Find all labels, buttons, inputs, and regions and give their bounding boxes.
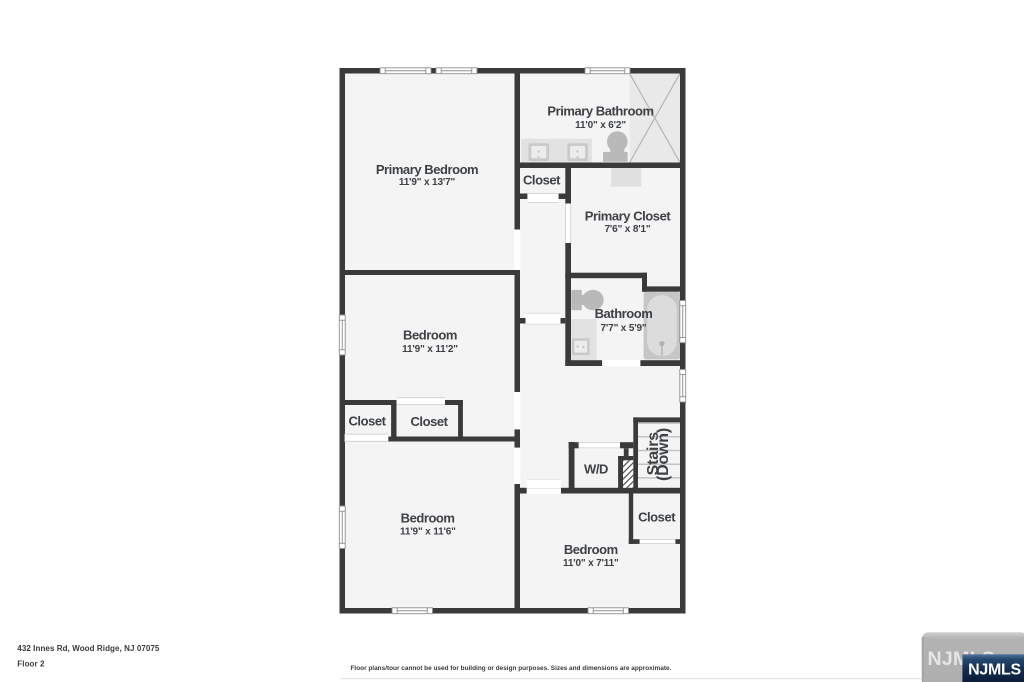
svg-text:(Down): (Down) [655,428,672,481]
svg-text:Bedroom: Bedroom [401,511,455,526]
svg-text:Primary Bathroom: Primary Bathroom [547,104,653,119]
svg-text:Primary Bedroom: Primary Bedroom [376,162,478,177]
svg-text:Floor 2: Floor 2 [17,660,45,669]
svg-text:Closet: Closet [638,510,676,525]
svg-text:11'9" x 13'7": 11'9" x 13'7" [399,177,456,188]
svg-text:432 Innes Rd, Wood Ridge, NJ 0: 432 Innes Rd, Wood Ridge, NJ 07075 [17,644,160,653]
svg-text:Closet: Closet [523,173,561,188]
svg-text:Bathroom: Bathroom [595,306,653,321]
svg-text:11'0" x 6'2": 11'0" x 6'2" [575,120,626,131]
svg-text:Bedroom: Bedroom [564,542,618,557]
svg-text:Floor plans/tour cannot be use: Floor plans/tour cannot be used for buil… [351,665,672,672]
svg-text:11'9" x 11'6": 11'9" x 11'6" [400,526,456,537]
svg-text:Closet: Closet [410,414,448,429]
svg-text:Closet: Closet [348,414,386,429]
svg-text:11'9" x 11'2": 11'9" x 11'2" [402,344,458,355]
svg-text:Bedroom: Bedroom [403,328,457,343]
svg-text:7'7" x 5'9": 7'7" x 5'9" [601,323,647,334]
svg-text:7'6" x 8'1": 7'6" x 8'1" [605,224,651,235]
svg-text:NJMLS: NJMLS [968,662,1021,679]
svg-text:W/D: W/D [584,462,608,477]
svg-text:Primary Closet: Primary Closet [585,209,672,224]
svg-text:11'0" x 7'11": 11'0" x 7'11" [563,558,619,569]
